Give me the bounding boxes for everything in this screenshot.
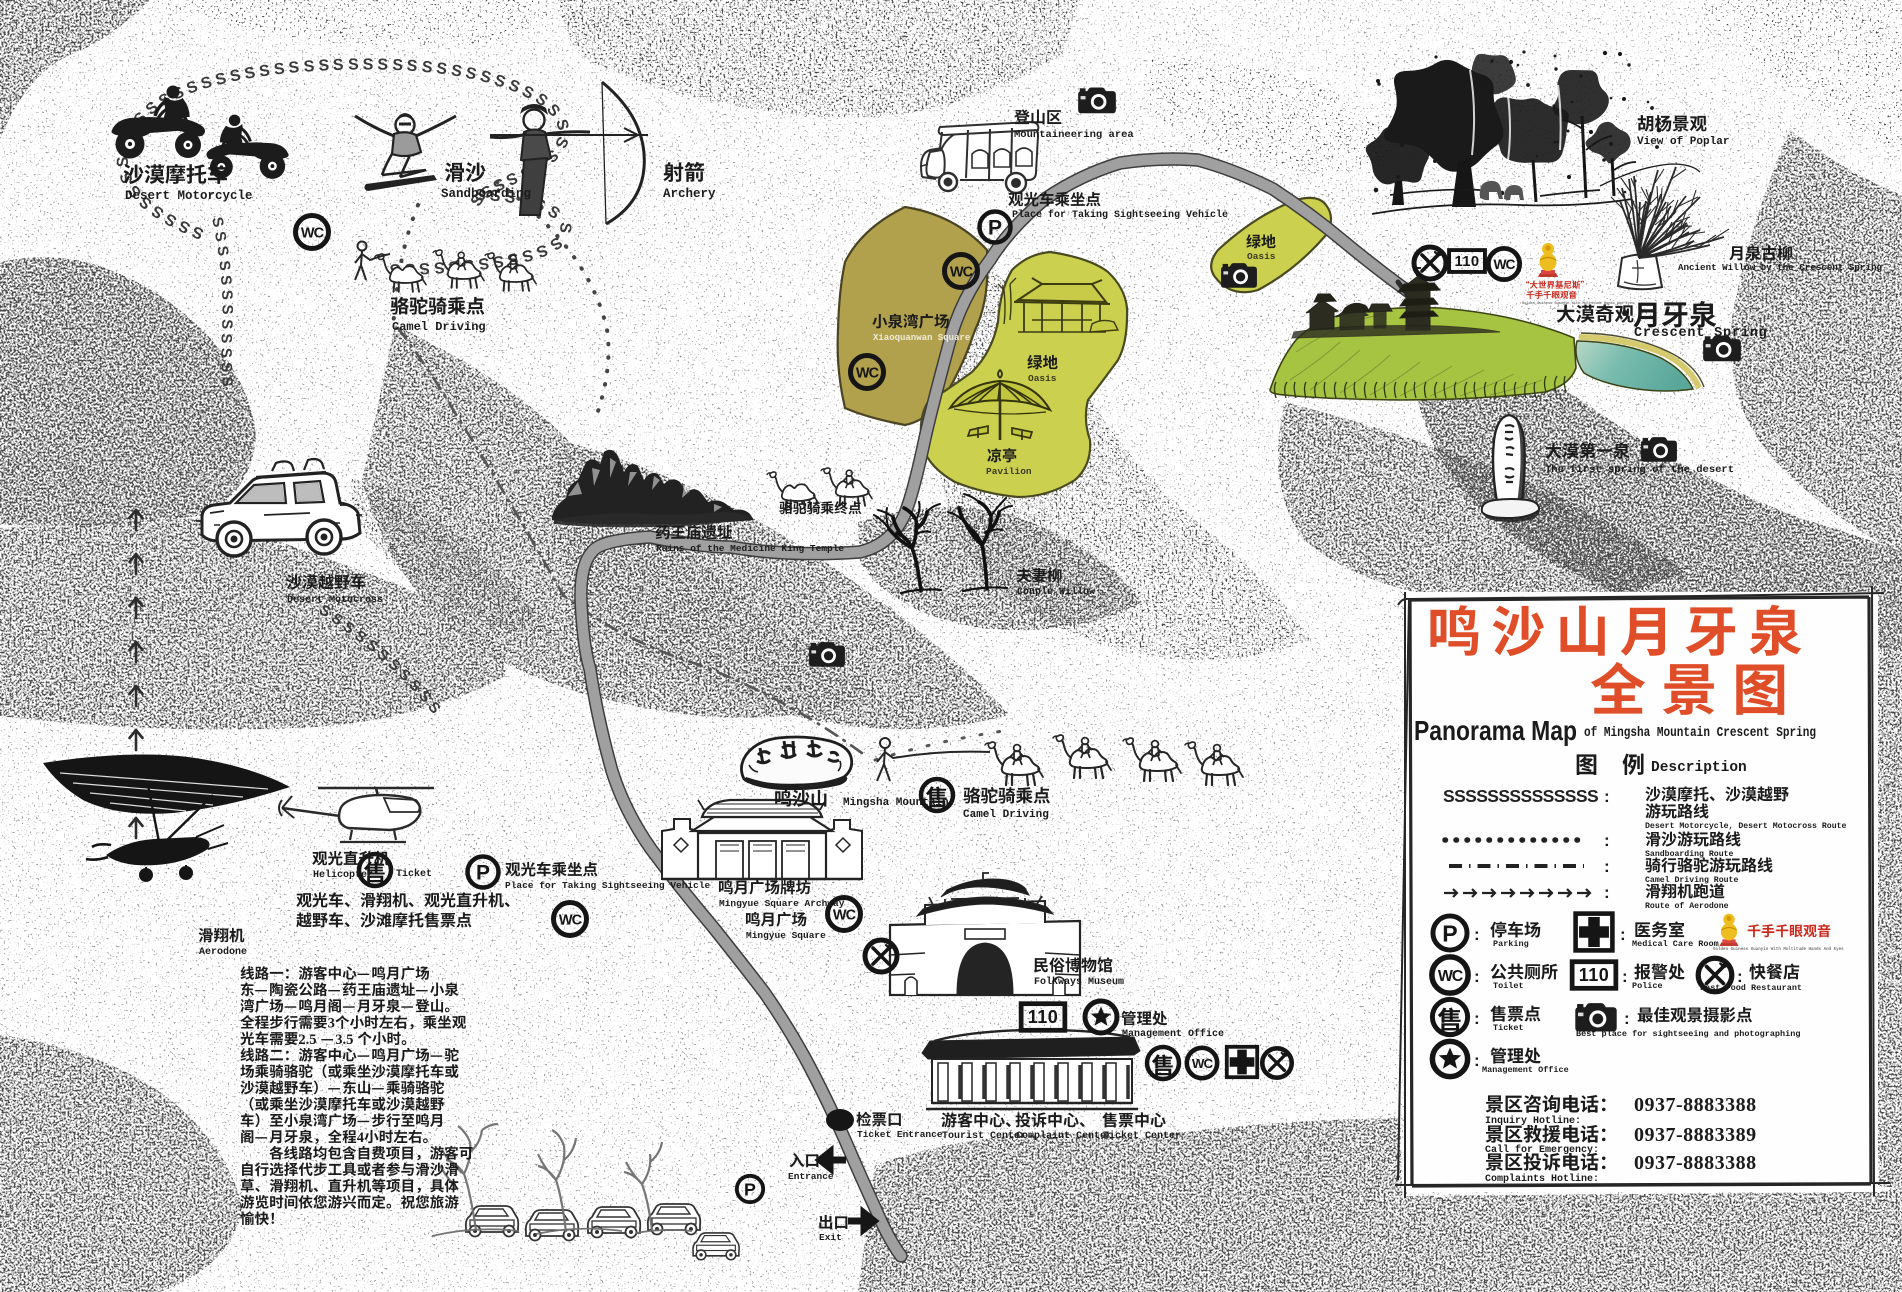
svg-text::: :: [1604, 787, 1610, 806]
svg-text:4: 4: [357, 1130, 364, 1146]
svg-text:Ruins of the Medicine King Tem: Ruins of the Medicine King Temple: [656, 543, 844, 554]
svg-text:Golden Guiness Guanyin With Mu: Golden Guiness Guanyin With Multitude Ha…: [1713, 947, 1844, 952]
svg-text::: :: [1604, 857, 1610, 876]
svg-text:Desert Motorcycle, Desert Moto: Desert Motorcycle, Desert Motocross Rout…: [1645, 821, 1847, 831]
svg-text:Panorama Map: Panorama Map: [1414, 715, 1577, 746]
svg-text:Management Office: Management Office: [1482, 1065, 1569, 1075]
svg-text:Mingyue Square: Mingyue Square: [746, 930, 826, 941]
svg-text:0937-8883389: 0937-8883389: [1634, 1124, 1757, 1146]
svg-text:SSSSSSSSSSSSSS: SSSSSSSSSSSSSS: [1443, 786, 1598, 806]
svg-text:Mingyue Square Archway: Mingyue Square Archway: [719, 898, 845, 909]
svg-text:Inquiry Hotline:: Inquiry Hotline:: [1485, 1115, 1581, 1127]
svg-text:View of Poplar: View of Poplar: [1637, 136, 1729, 148]
svg-text:Toilet: Toilet: [1493, 981, 1524, 991]
svg-text:0937-8883388: 0937-8883388: [1634, 1094, 1757, 1116]
svg-text:Sandboarding: Sandboarding: [441, 187, 531, 201]
svg-text:Tourist Center: Tourist Center: [942, 1130, 1026, 1142]
svg-text::: :: [1622, 967, 1628, 986]
svg-text:Ticket Entrance: Ticket Entrance: [857, 1129, 943, 1140]
svg-text:Parking: Parking: [1493, 939, 1529, 949]
svg-text:Mountaineering area: Mountaineering area: [1014, 129, 1134, 141]
svg-text:Oasis: Oasis: [1247, 251, 1276, 262]
svg-text:Aerodone: Aerodone: [199, 946, 247, 958]
svg-text::: :: [1474, 1009, 1480, 1028]
svg-text:Police: Police: [1632, 981, 1663, 991]
svg-text:Desert Motorcycle: Desert Motorcycle: [125, 189, 253, 203]
svg-text:Ticket: Ticket: [1493, 1023, 1524, 1033]
svg-text:Complaints Hotline:: Complaints Hotline:: [1485, 1173, 1599, 1185]
svg-text:0937-8883388: 0937-8883388: [1634, 1152, 1757, 1174]
svg-text:Ancient Willow by the Crescent: Ancient Willow by the Crescent Spring: [1678, 262, 1882, 273]
svg-text:Oasis: Oasis: [1028, 373, 1057, 384]
svg-text:Entrance: Entrance: [788, 1171, 834, 1182]
svg-text::: :: [1604, 831, 1610, 850]
svg-text:Description: Description: [1651, 760, 1747, 776]
svg-text:Complaint Center: Complaint Center: [1016, 1130, 1112, 1142]
svg-text:Exit: Exit: [819, 1232, 842, 1243]
svg-text:Medical Care Room: Medical Care Room: [1632, 939, 1719, 949]
svg-text:Place for Taking Sightseeing V: Place for Taking Sightseeing Vehicle: [505, 880, 711, 891]
svg-text:Camel Driving: Camel Driving: [392, 320, 486, 334]
svg-text::: :: [1474, 925, 1480, 944]
svg-text:Sandboarding Route: Sandboarding Route: [1645, 849, 1734, 859]
svg-text:Folkways Museum: Folkways Museum: [1034, 976, 1124, 988]
svg-text:Mingsha Mountain: Mingsha Mountain: [843, 797, 949, 809]
svg-text:The first spring of the desert: The first spring of the desert: [1545, 464, 1734, 476]
svg-text::: :: [1604, 883, 1610, 902]
svg-text:Management Office: Management Office: [1122, 1028, 1224, 1040]
svg-text:of Mingsha Mountain Crescent S: of Mingsha Mountain Crescent Spring: [1584, 726, 1816, 741]
svg-text:Helicopter: Helicopter: [313, 869, 373, 881]
svg-text:Best place for sightseeing and: Best place for sightseeing and photograp…: [1576, 1029, 1800, 1039]
svg-text::: :: [1620, 925, 1626, 944]
svg-text:Desert Motocross: Desert Motocross: [287, 595, 383, 606]
svg-text:Camel Driving Route: Camel Driving Route: [1645, 875, 1738, 885]
svg-text:Ticket Center: Ticket Center: [1103, 1130, 1181, 1142]
svg-text:Xiaoquanwan Square: Xiaoquanwan Square: [873, 333, 970, 343]
svg-text:3.5: 3.5: [335, 1032, 353, 1048]
svg-text:Route of Aerodone: Route of Aerodone: [1645, 901, 1729, 911]
svg-text:Place for Taking Sightseeing V: Place for Taking Sightseeing Vehicle: [1012, 209, 1228, 221]
svg-text:Ticket: Ticket: [396, 868, 432, 880]
svg-text::: :: [1624, 1009, 1630, 1028]
svg-text:Fast Food Restaurant: Fast Food Restaurant: [1700, 983, 1802, 993]
svg-text:Camel Driving: Camel Driving: [963, 809, 1049, 821]
svg-text:Crescent Spring: Crescent Spring: [1634, 326, 1768, 341]
svg-text:3: 3: [328, 1016, 335, 1032]
svg-text:Archery: Archery: [663, 187, 716, 201]
svg-text:Pavilion: Pavilion: [986, 466, 1032, 477]
svg-text:Couple Willow: Couple Willow: [1017, 586, 1095, 598]
svg-text::: :: [1474, 1051, 1480, 1070]
svg-text::: :: [1474, 967, 1480, 986]
svg-text:2.5: 2.5: [298, 1032, 316, 1048]
